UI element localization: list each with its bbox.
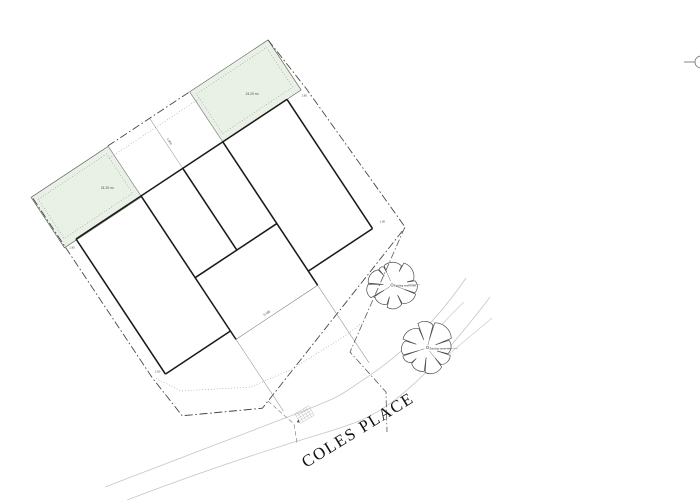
svg-text:24.29 m²: 24.29 m² [246,92,260,96]
svg-text:1.80: 1.80 [301,94,307,98]
svg-text:1.80: 1.80 [155,369,161,373]
svg-text:1.80: 1.80 [380,219,386,223]
svg-text:1.80: 1.80 [69,245,75,249]
svg-text:24.29 m²: 24.29 m² [101,186,115,190]
